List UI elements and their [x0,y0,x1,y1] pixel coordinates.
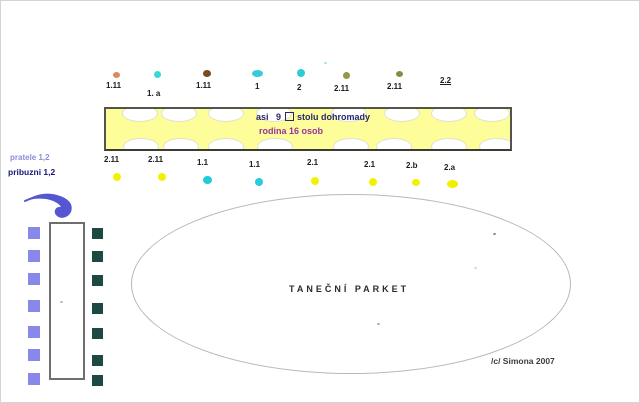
seat-dot [255,178,263,186]
friends-group-label: pratele 1,2 [10,153,50,162]
guest-square-left [28,273,40,285]
seat-dot [297,69,305,77]
stray-mark [474,267,477,269]
seat-dot [113,72,120,78]
stray-mark [324,62,327,64]
head-table [49,222,85,380]
signature-text: /c/ Simona 2007 [491,356,555,366]
table-caption-line1: asi 9stolu dohromady [256,112,370,122]
table-caption-line2: rodina 16 osob [259,126,323,136]
seat-label: 2.11 [104,155,119,164]
guest-square-left [28,250,40,262]
seat-label: 1.11 [196,81,211,90]
seat-dot [203,70,211,77]
seat-dot [343,72,350,79]
curved-arrow-icon [23,187,81,221]
guest-square-right [92,303,103,314]
seat-label: 1.11 [106,81,121,90]
plate [479,138,512,151]
stray-mark [493,233,496,235]
seat-label: 1 [255,82,259,91]
plate [384,107,420,122]
guest-square-left [28,300,40,312]
seat-dot [158,173,166,181]
guest-square-right [92,328,103,339]
dance-floor-ellipse: TANEČNÍ PARKET [131,194,571,374]
guest-square-right [92,355,103,366]
seat-label: 2.11 [387,82,402,91]
guest-square-right [92,375,103,386]
plate [161,107,197,122]
seat-dot [369,178,377,186]
table-caption-line1b: stolu dohromady [297,112,370,122]
plate [333,138,369,151]
seat-label: 1.1 [197,158,208,167]
plate [163,138,199,151]
seat-dot [396,71,403,77]
seat-dot [154,71,161,78]
plate [376,138,412,151]
guest-square-right [92,251,103,262]
stray-mark [60,301,63,303]
seat-label: 1. a [147,89,160,98]
dance-floor-label: TANEČNÍ PARKET [289,284,409,294]
guest-square-left [28,349,40,361]
plate [208,138,244,151]
guest-square-left [28,326,40,338]
seat-dot [447,180,458,188]
banquet-table: asi 9stolu dohromady rodina 16 osob [104,107,512,151]
table-caption-line1a: asi 9 [256,112,281,122]
stray-mark [377,323,380,325]
seat-dot [113,173,121,181]
guest-square-right [92,275,103,286]
seat-dot [311,177,319,185]
empty-checkbox-icon [285,112,294,121]
seat-label: 2 [297,83,301,92]
seat-dot [252,70,263,77]
seat-dot [203,176,212,184]
seat-label: 1.1 [249,160,260,169]
seating-plan-diagram: asi 9stolu dohromady rodina 16 osob prat… [0,0,640,403]
plate [431,107,467,122]
seat-label: 2.1 [364,160,375,169]
seat-label: 2.2 [440,76,451,85]
seat-dot [412,179,420,186]
plate [122,107,158,122]
guest-square-left [28,373,40,385]
guest-square-right [92,228,103,239]
plate [431,138,467,151]
guest-square-left [28,227,40,239]
seat-label: 2.11 [334,84,349,93]
seat-label: 2.11 [148,155,163,164]
seat-label: 2.1 [307,158,318,167]
plate [208,107,244,122]
relatives-group-label: pribuzni 1,2 [8,167,55,177]
plate [123,138,159,151]
seat-label: 2.a [444,163,455,172]
seat-label: 2.b [406,161,418,170]
plate [257,138,293,151]
plate [474,107,510,122]
